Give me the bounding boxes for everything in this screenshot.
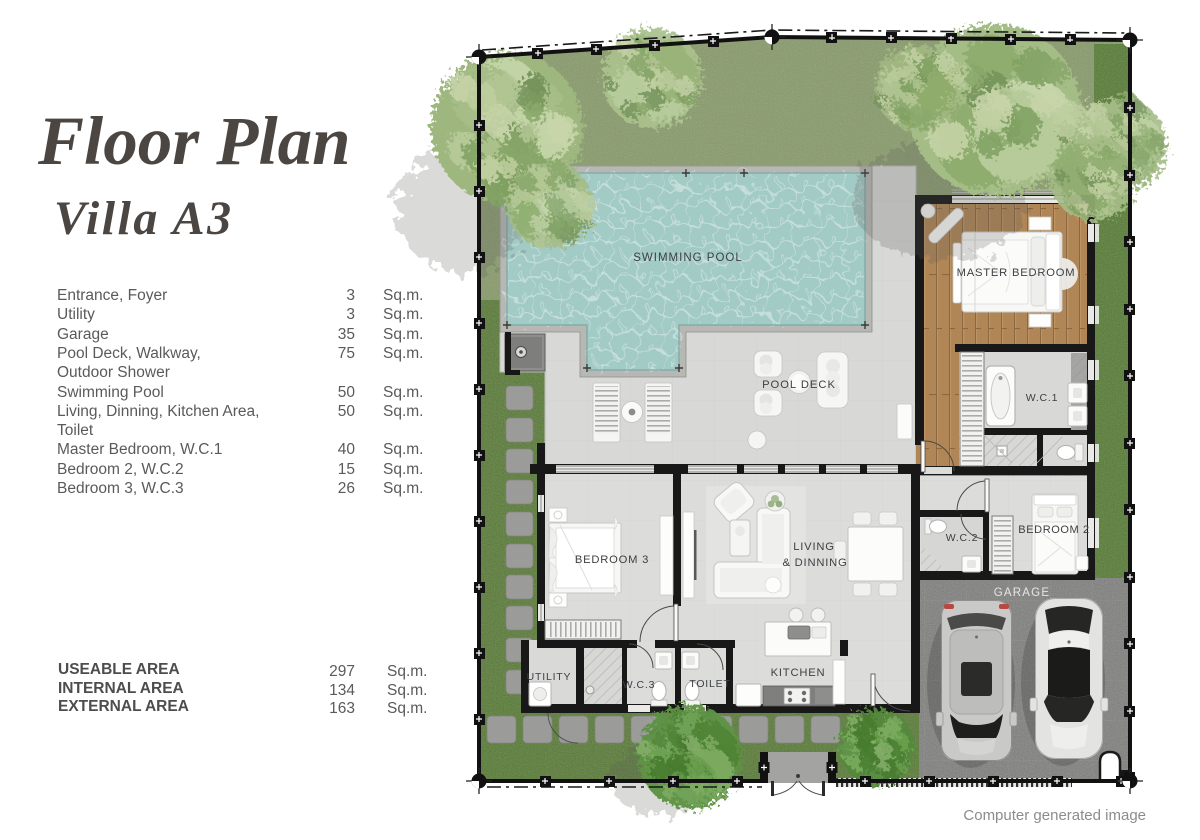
svg-text:W.C.2: W.C.2 — [946, 532, 979, 544]
svg-text:KITCHEN: KITCHEN — [771, 667, 826, 679]
svg-text:MASTER BEDROOM: MASTER BEDROOM — [957, 267, 1076, 279]
svg-text:GARAGE: GARAGE — [994, 587, 1050, 599]
svg-text:W.C.3: W.C.3 — [623, 679, 656, 691]
svg-text:SWIMMING POOL: SWIMMING POOL — [633, 252, 742, 264]
svg-text:POOL DECK: POOL DECK — [762, 379, 836, 391]
svg-text:BEDROOM 3: BEDROOM 3 — [575, 554, 649, 566]
svg-text:LIVING: LIVING — [793, 541, 834, 553]
svg-text:& DINNING: & DINNING — [782, 557, 847, 569]
svg-text:W.C.1: W.C.1 — [1026, 392, 1059, 404]
svg-text:UTILITY: UTILITY — [527, 671, 572, 683]
svg-text:BEDROOM 2: BEDROOM 2 — [1018, 524, 1089, 536]
svg-text:TOILET: TOILET — [689, 678, 730, 690]
